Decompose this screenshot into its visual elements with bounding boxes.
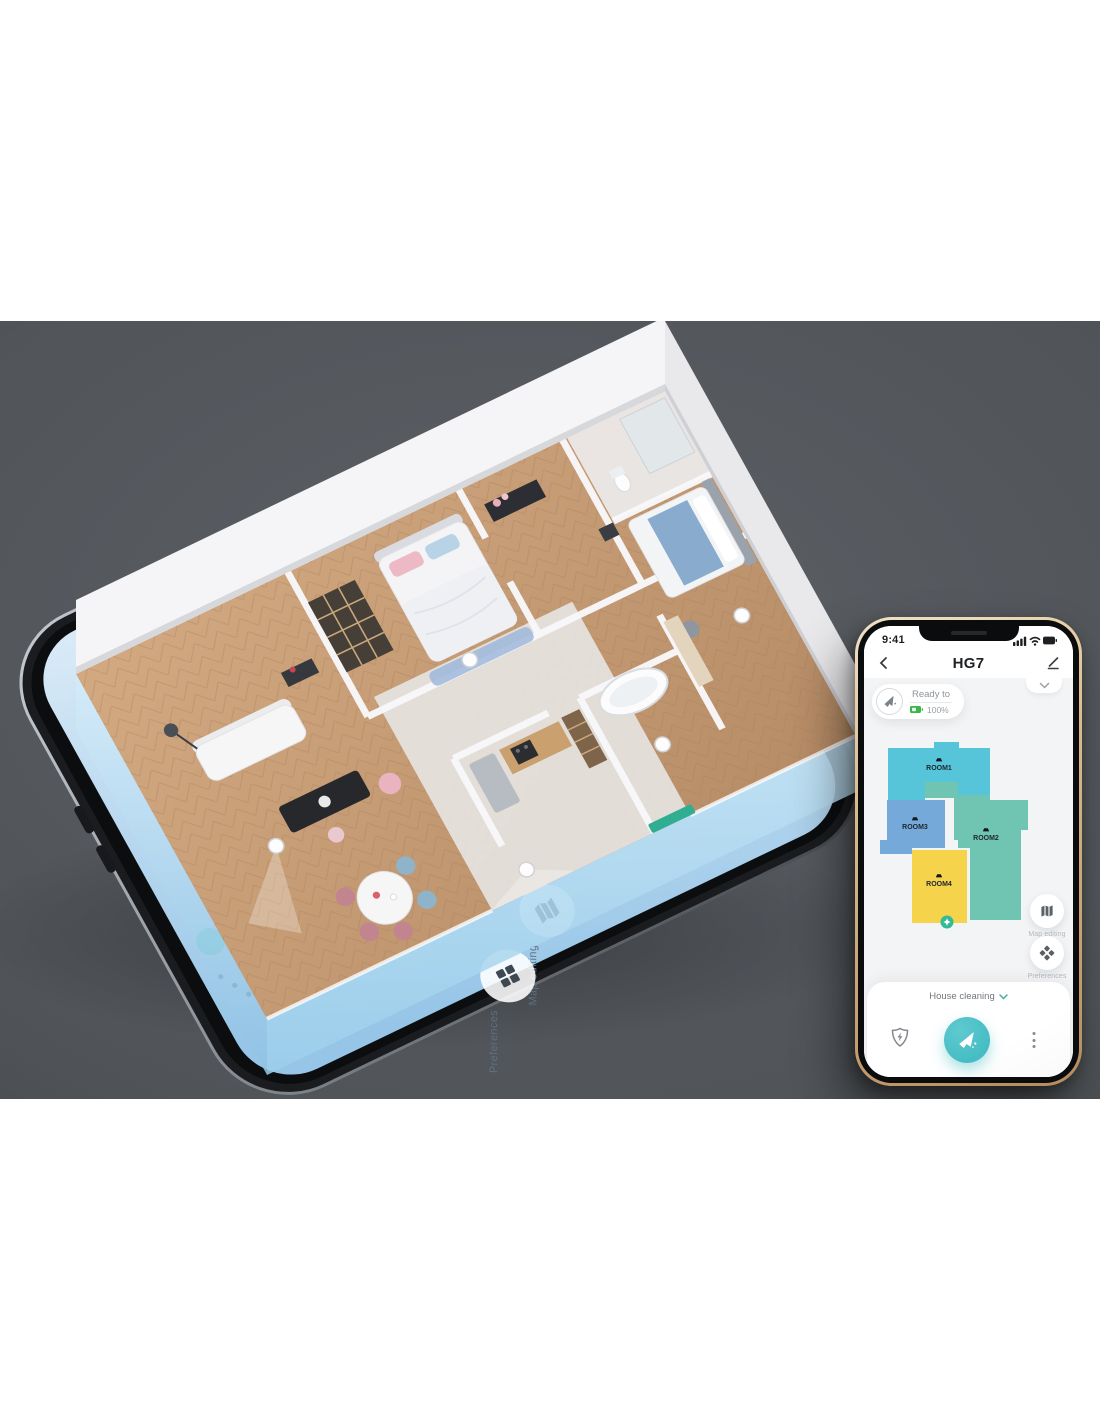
robot-avatar (876, 688, 903, 715)
room4-label: ROOM4 (926, 881, 952, 888)
cleaning-map: ROOM1 ROOM2 ROOM3 ROOM4 (878, 742, 1030, 939)
status-time: 9:41 (882, 634, 905, 646)
robot-location-marker (941, 916, 954, 929)
bottom-panel: House cleaning (867, 982, 1070, 1077)
map-icon (1039, 903, 1055, 919)
wifi-icon (1031, 637, 1040, 641)
page-title: HG7 (953, 655, 985, 672)
robot-status-text: Ready to (910, 689, 952, 703)
signal-icon (1013, 636, 1026, 645)
cleaning-mode-label: House cleaning (929, 991, 995, 1002)
diamond-grid-icon (1039, 945, 1055, 961)
battery-percent: 100% (927, 705, 949, 715)
back-button[interactable] (877, 656, 891, 670)
battery-icon (910, 706, 923, 714)
edit-button[interactable] (1046, 656, 1060, 670)
robot-status-chip[interactable]: Ready to 100% (872, 684, 964, 719)
app-content: Ready to 100% (864, 678, 1073, 1077)
recharge-button[interactable] (891, 1027, 910, 1053)
shield-bolt-icon (891, 1027, 910, 1048)
room3-label: ROOM3 (902, 824, 928, 831)
more-options-button[interactable] (1033, 1032, 1036, 1048)
preferences-label: Preferences (1017, 973, 1073, 980)
panel-collapse-tab[interactable] (1026, 678, 1062, 693)
map-editing-button[interactable]: Map editing (1017, 894, 1073, 938)
smartphone-mockup: 9:41 (855, 617, 1082, 1086)
app-header: HG7 (864, 648, 1073, 678)
preferences-button[interactable]: Preferences (1017, 936, 1073, 980)
phone-notch (919, 626, 1019, 641)
marketing-image: Map editing Preferences (0, 0, 1100, 1422)
chevron-down-icon (1039, 682, 1050, 689)
kebab-menu-icon (1033, 1032, 1036, 1048)
status-icons (1013, 635, 1057, 646)
chevron-left-icon (881, 658, 886, 668)
chevron-down-icon (999, 994, 1008, 1000)
room2-label: ROOM2 (973, 835, 999, 842)
cleaning-mode-selector[interactable]: House cleaning (867, 991, 1070, 1002)
pencil-icon (1049, 658, 1059, 669)
control-row (867, 1012, 1070, 1068)
phone-screen: 9:41 (864, 626, 1073, 1077)
giant-preferences-label: Preferences (488, 1010, 501, 1074)
battery-icon (1043, 636, 1057, 644)
start-cleaning-button[interactable] (944, 1017, 990, 1063)
robot-clean-icon (955, 1028, 979, 1052)
room1-label: ROOM1 (926, 765, 952, 772)
phone-bezel: 9:41 (858, 620, 1079, 1083)
product-photo: Map editing Preferences (0, 321, 1100, 1099)
robot-vacuum-icon (882, 694, 897, 709)
